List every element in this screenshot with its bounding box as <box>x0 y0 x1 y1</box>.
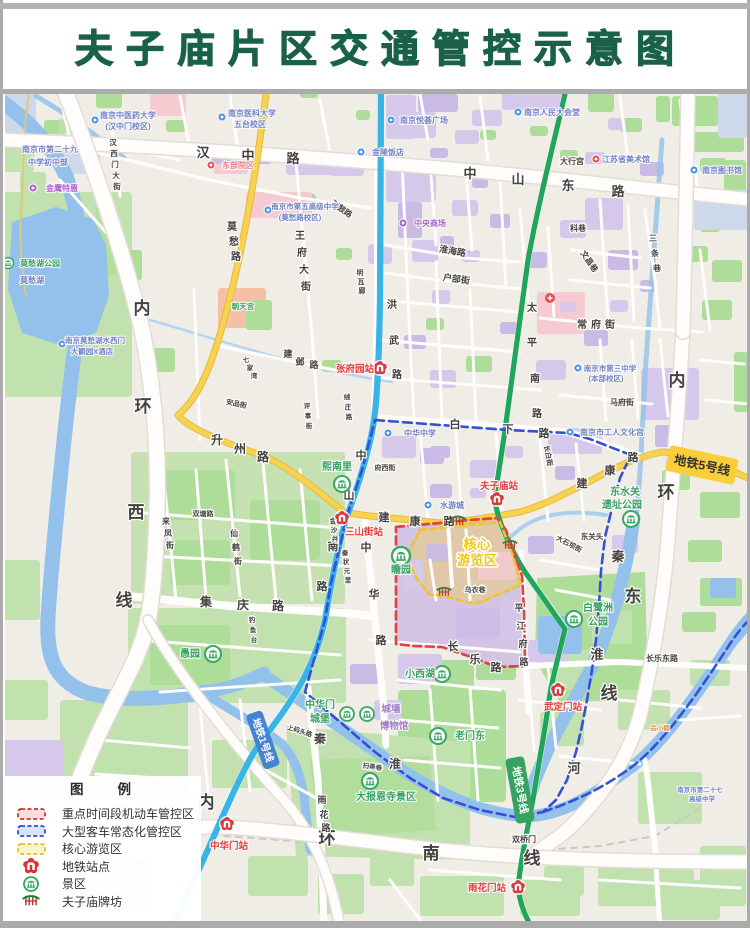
svg-text:地铁站点: 地铁站点 <box>62 860 110 874</box>
svg-text:重点时间段机动车管控区: 重点时间段机动车管控区 <box>62 806 194 821</box>
svg-text:图例: 图例 <box>70 781 165 797</box>
svg-text:大型客车常态化管控区: 大型客车常态化管控区 <box>62 824 182 839</box>
svg-text:景区: 景区 <box>62 877 86 891</box>
svg-text:夫子庙牌坊: 夫子庙牌坊 <box>62 894 122 909</box>
svg-text:核心游览区: 核心游览区 <box>62 841 122 856</box>
svg-text:夫子庙片区交通管控示意图: 夫子庙片区交通管控示意图 <box>75 28 687 71</box>
